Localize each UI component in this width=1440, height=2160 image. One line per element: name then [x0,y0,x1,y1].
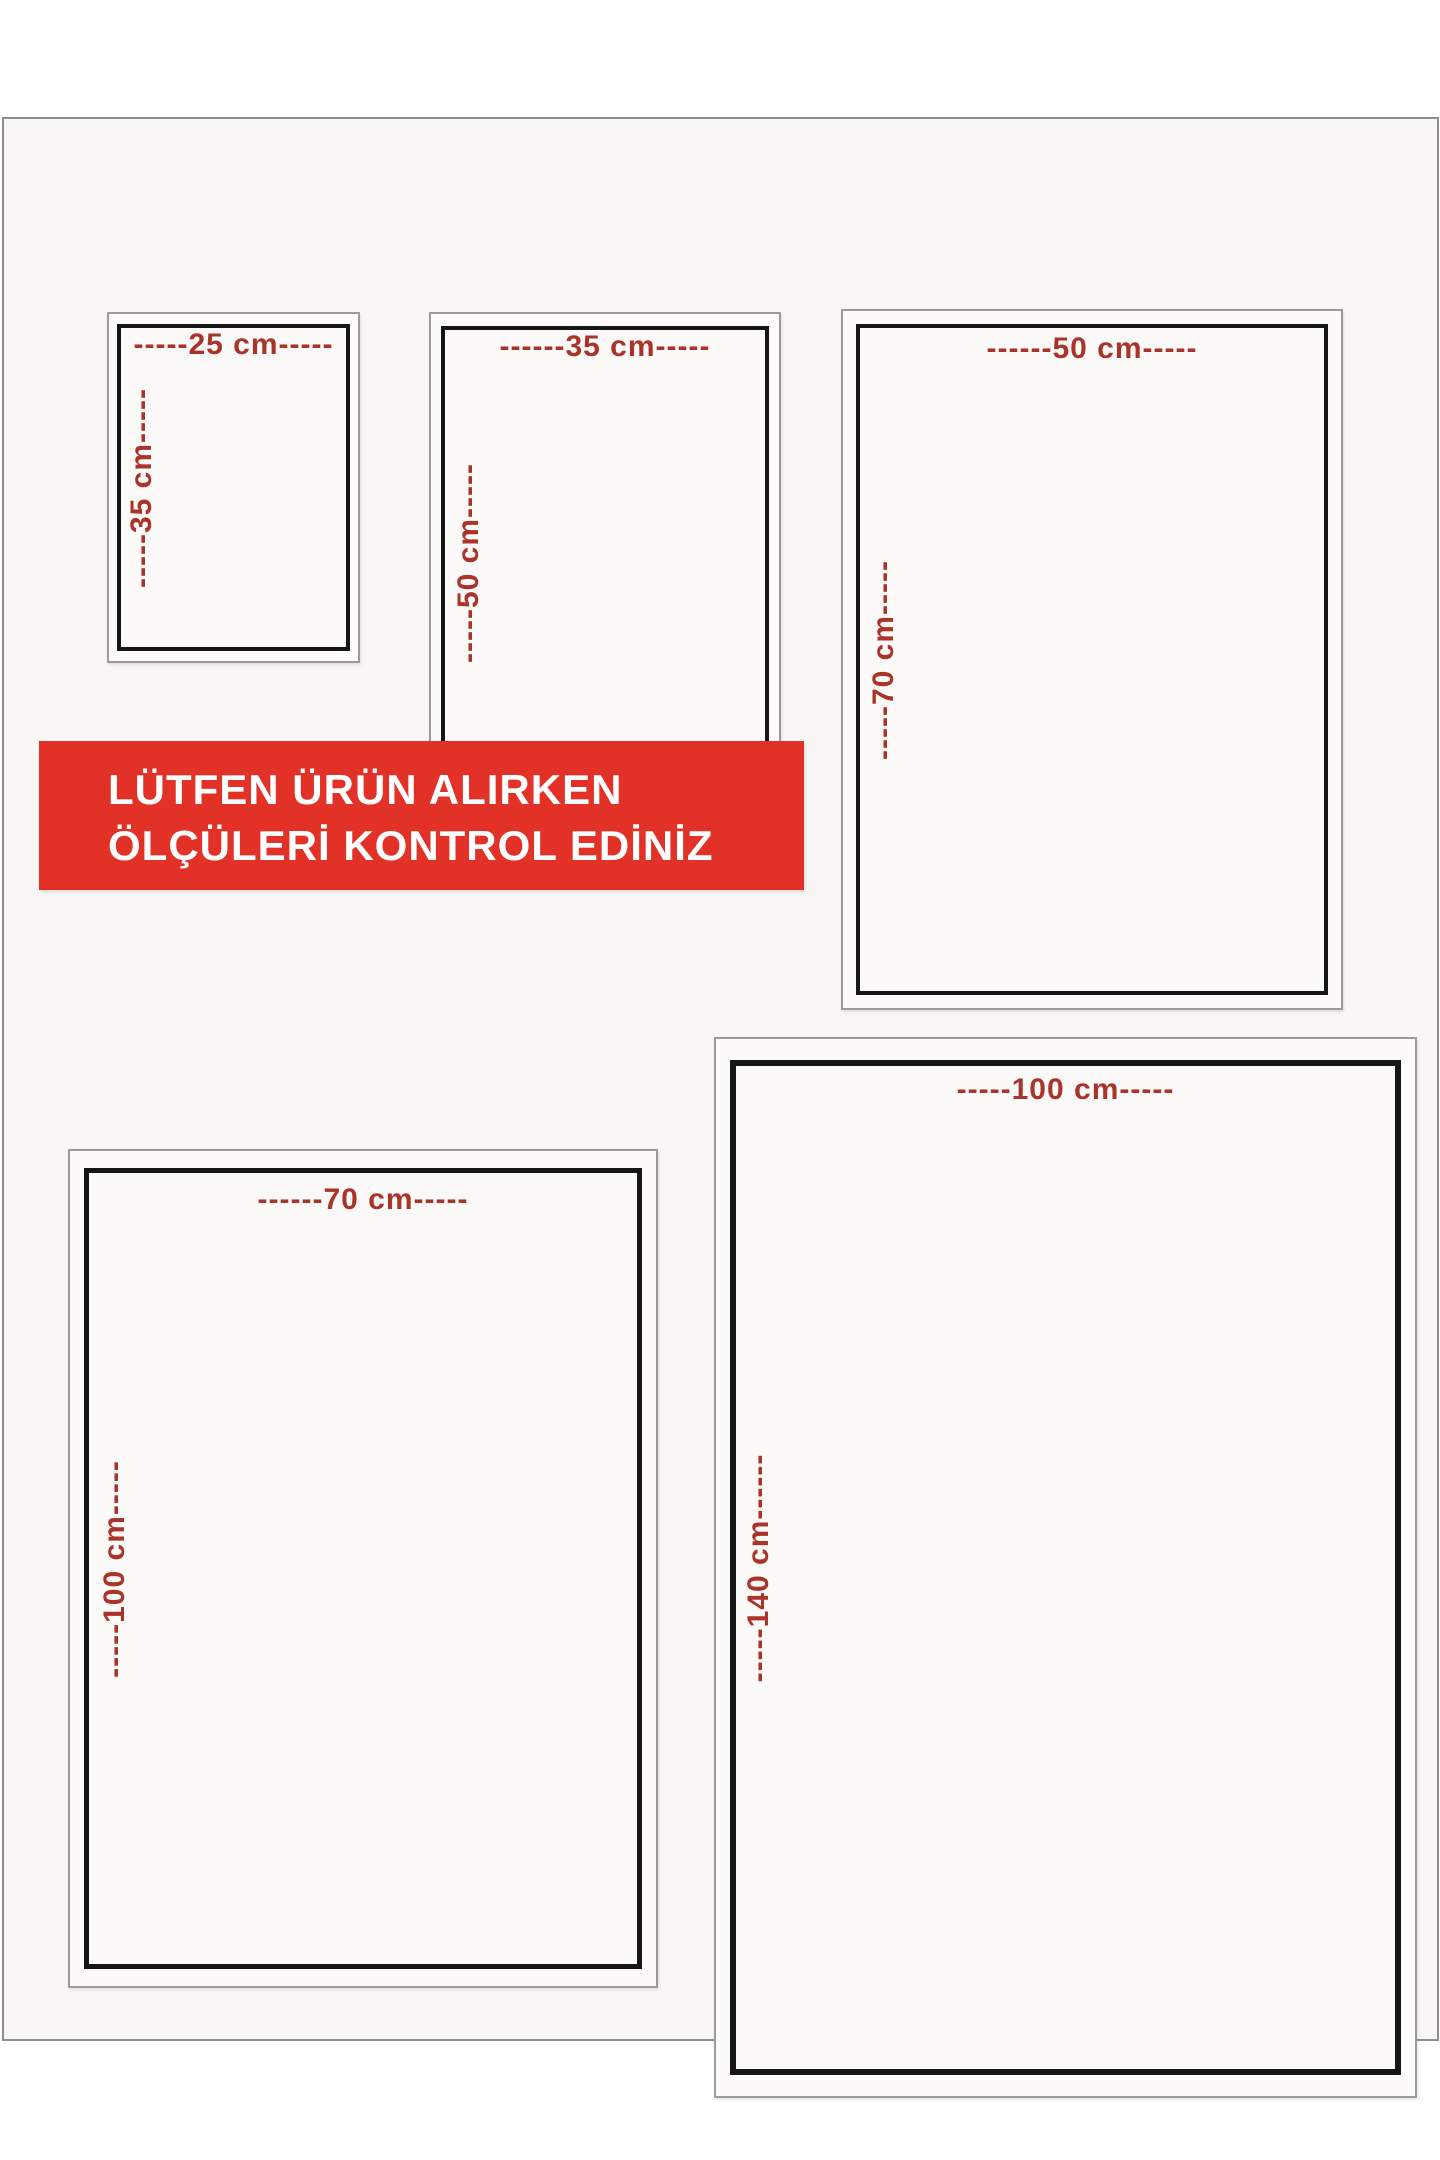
height-dimension-label: -----100 cm----- [100,1460,130,1678]
size-box-70x100: ------70 cm----- -----100 cm----- [68,1149,658,1988]
width-dimension-label: ------50 cm----- [860,334,1324,364]
inner-rectangle-100x140: -----100 cm----- -----140 cm------ [730,1060,1401,2075]
height-dimension-label: -----70 cm----- [869,560,899,760]
size-box-25x35: -----25 cm----- -----35 cm----- [107,312,360,663]
inner-rectangle-50x70: ------50 cm----- -----70 cm----- [856,324,1328,995]
content-frame: -----25 cm----- -----35 cm----- ------35… [2,117,1439,2041]
size-chart-image: -----25 cm----- -----35 cm----- ------35… [0,0,1440,2160]
warning-banner-line2: ÖLÇÜLERİ KONTROL EDİNİZ [108,818,804,874]
inner-rectangle-25x35: -----25 cm----- -----35 cm----- [117,324,350,651]
inner-rectangle-70x100: ------70 cm----- -----100 cm----- [84,1168,642,1969]
width-dimension-label: ------35 cm----- [445,332,765,362]
warning-banner: LÜTFEN ÜRÜN ALIRKEN ÖLÇÜLERİ KONTROL EDİ… [39,741,804,890]
inner-rectangle-35x50: ------35 cm----- -----50 cm----- [441,326,769,799]
width-dimension-label: ------70 cm----- [89,1185,637,1215]
size-box-100x140: -----100 cm----- -----140 cm------ [714,1037,1417,2098]
height-dimension-label: -----35 cm----- [127,388,157,588]
height-dimension-label: -----50 cm----- [454,463,484,663]
warning-banner-line1: LÜTFEN ÜRÜN ALIRKEN [108,762,804,818]
size-box-50x70: ------50 cm----- -----70 cm----- [841,309,1343,1010]
height-dimension-label: -----140 cm------ [744,1453,774,1682]
width-dimension-label: -----100 cm----- [736,1075,1395,1105]
width-dimension-label: -----25 cm----- [121,330,346,360]
size-box-35x50: ------35 cm----- -----50 cm----- [429,312,781,813]
